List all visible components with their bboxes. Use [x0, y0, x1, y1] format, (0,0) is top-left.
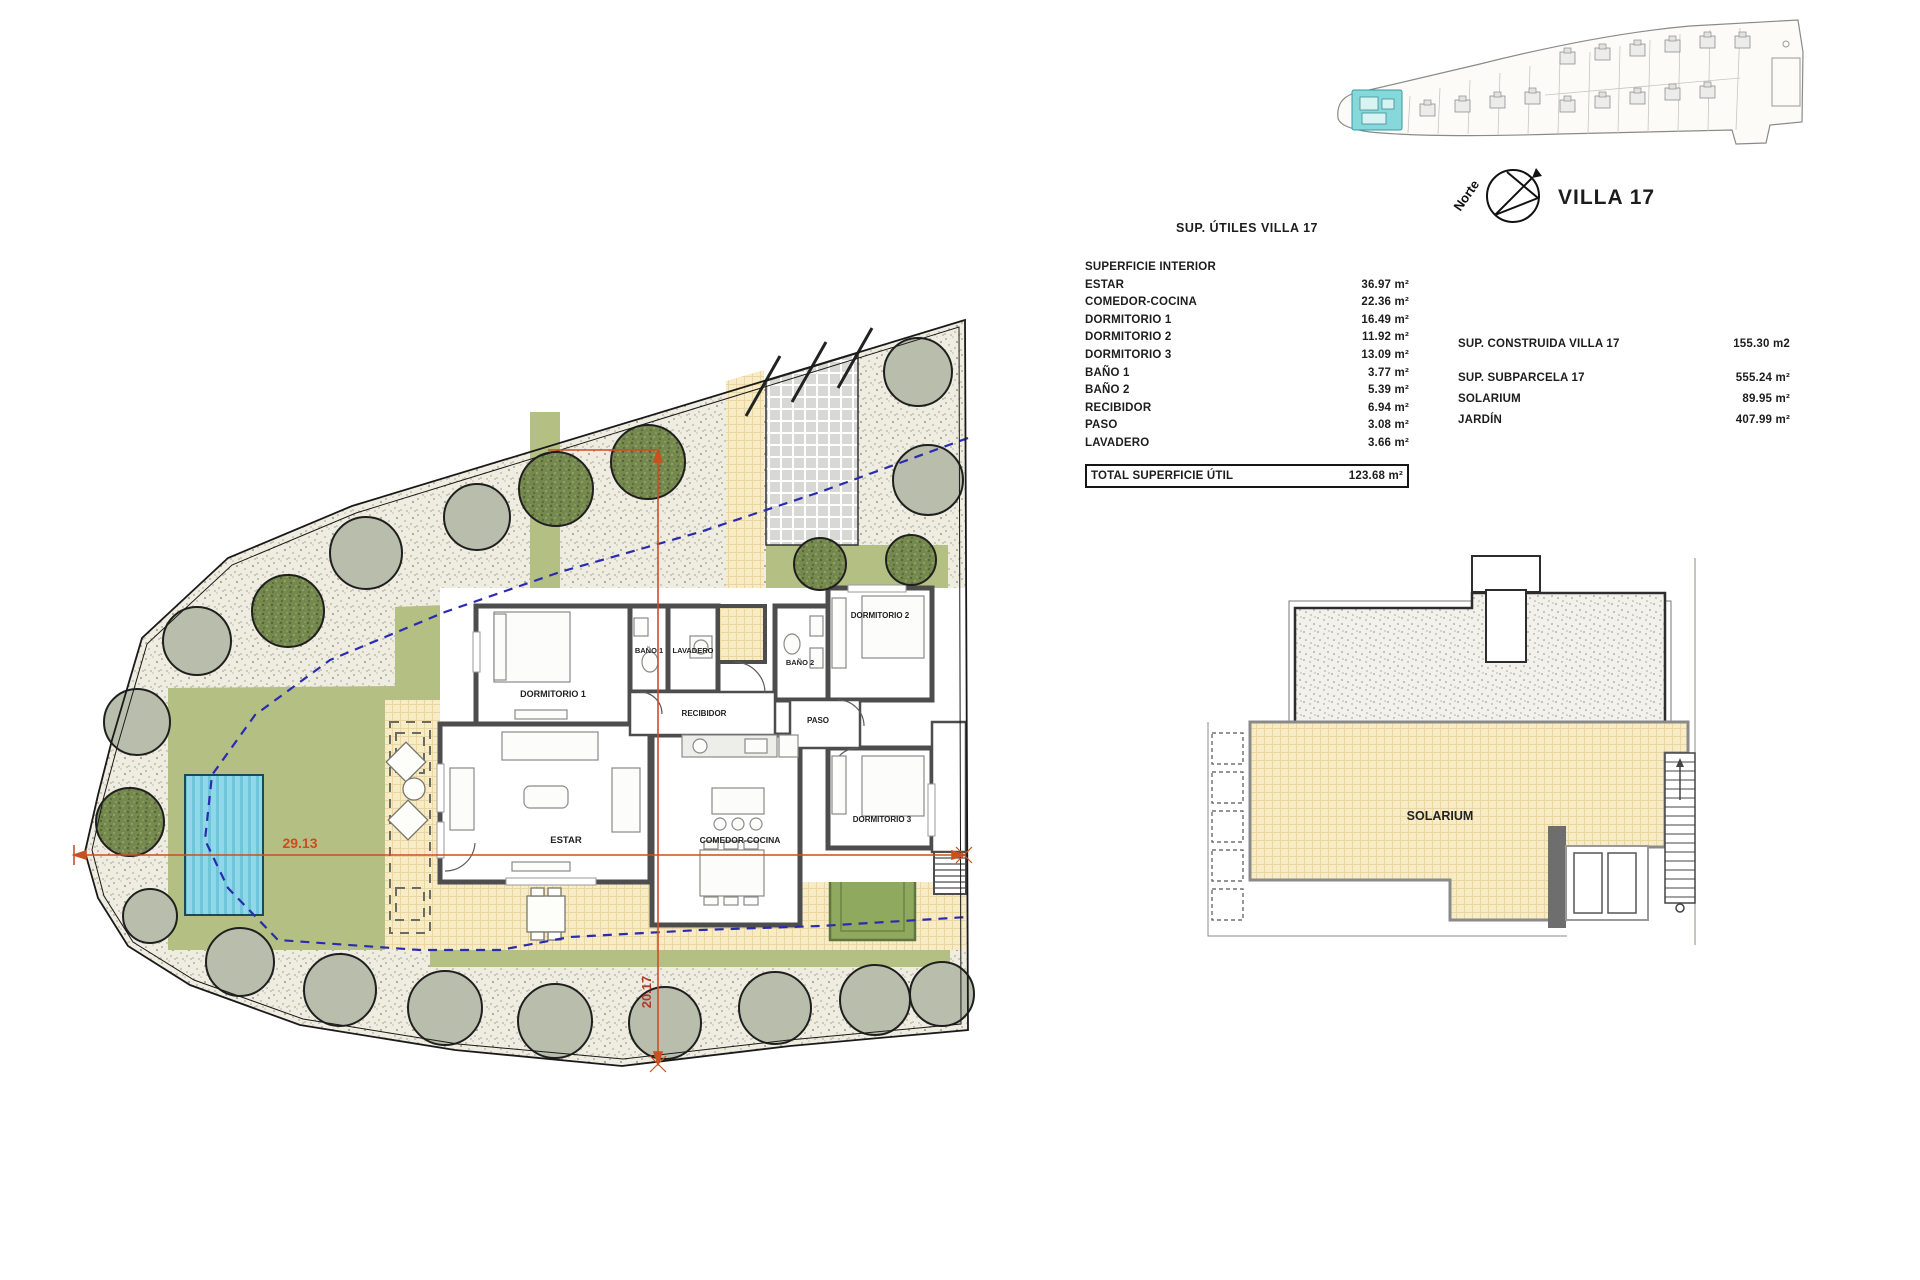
- solarium-wall-bar: [1548, 826, 1566, 928]
- table-row: RECIBIDOR6.94 m²: [1085, 400, 1409, 418]
- row-label: JARDÍN: [1458, 410, 1502, 431]
- table-row: COMEDOR-COCINA22.36 m²: [1085, 294, 1409, 312]
- dimension-depth-label: 20.17: [639, 976, 654, 1009]
- room-label-dormitorio3: DORMITORIO 3: [853, 815, 912, 824]
- table-row: DORMITORIO 211.92 m²: [1085, 329, 1409, 347]
- total-row: TOTAL SUPERFICIE ÚTIL123.68 m²: [1085, 464, 1409, 488]
- row-label: SUPERFICIE INTERIOR: [1085, 259, 1216, 277]
- table-row: LAVADERO3.66 m²: [1085, 435, 1409, 453]
- dimension-width-label: 29.13: [282, 835, 317, 851]
- north-compass: Norte: [1450, 168, 1542, 222]
- row-label: DORMITORIO 2: [1085, 329, 1172, 347]
- house: DORMITORIO 1 BAÑO 1 LAVADERO BAÑO 2 DORM…: [437, 585, 966, 925]
- room-label-dormitorio2: DORMITORIO 2: [851, 611, 910, 620]
- row-label: BAÑO 1: [1085, 365, 1130, 383]
- row-label: COMEDOR-COCINA: [1085, 294, 1197, 312]
- solarium-stairs: [1665, 753, 1695, 912]
- room-label-recibidor: RECIBIDOR: [682, 709, 727, 718]
- row-value: 155.30 m2: [1733, 334, 1790, 355]
- table-row: DORMITORIO 313.09 m²: [1085, 347, 1409, 365]
- room-label-estar: ESTAR: [550, 835, 582, 846]
- solarium-planters: [1212, 733, 1243, 920]
- sheet-title: VILLA 17: [1558, 186, 1655, 210]
- row-value: 36.97 m²: [1361, 277, 1409, 295]
- site-map-thumbnail: [1338, 20, 1803, 144]
- row-label: DORMITORIO 3: [1085, 347, 1172, 365]
- room-label-bano2: BAÑO 2: [786, 658, 814, 667]
- pool: [185, 775, 263, 915]
- table-row: BAÑO 25.39 m²: [1085, 382, 1409, 400]
- summary-row: SUP. CONSTRUIDA VILLA 17155.30 m2: [1458, 334, 1790, 355]
- table-row: PASO3.08 m²: [1085, 417, 1409, 435]
- north-label: Norte: [1450, 177, 1482, 213]
- row-label: DORMITORIO 1: [1085, 312, 1172, 330]
- summary-row: JARDÍN407.99 m²: [1458, 410, 1790, 431]
- row-label: SUP. CONSTRUIDA VILLA 17: [1458, 334, 1620, 355]
- table-row: BAÑO 13.77 m²: [1085, 365, 1409, 383]
- entry-recess: [718, 606, 765, 662]
- row-value: 3.66 m²: [1368, 435, 1409, 453]
- summary-row: SUP. SUBPARCELA 17555.24 m²: [1458, 368, 1790, 389]
- areas-table: SUP. ÚTILES VILLA 17 SUPERFICIE INTERIOR…: [1085, 221, 1409, 488]
- solarium-label: SOLARIUM: [1407, 809, 1474, 823]
- architectural-plan-sheet: DORMITORIO 1 BAÑO 1 LAVADERO BAÑO 2 DORM…: [0, 0, 1920, 1280]
- outdoor-table: [527, 888, 565, 940]
- row-value: 89.95 m²: [1742, 389, 1790, 410]
- room-label-lavadero: LAVADERO: [673, 646, 714, 655]
- row-value: 11.92 m²: [1362, 329, 1409, 347]
- row-value: 5.39 m²: [1368, 382, 1409, 400]
- roof-notch: [1486, 590, 1526, 662]
- areas-table-title: SUP. ÚTILES VILLA 17: [1085, 221, 1409, 235]
- row-value: 3.77 m²: [1368, 365, 1409, 383]
- compass-arrowhead: [1532, 168, 1542, 178]
- room-label-bano1: BAÑO 1: [635, 646, 663, 655]
- room-label-dormitorio1: DORMITORIO 1: [520, 689, 586, 699]
- compass-arrow-icon: [1495, 172, 1538, 215]
- row-label: SOLARIUM: [1458, 389, 1521, 410]
- roof-area: [1295, 593, 1665, 722]
- row-label: RECIBIDOR: [1085, 400, 1151, 418]
- row-value: 22.36 m²: [1361, 294, 1409, 312]
- site-plan: DORMITORIO 1 BAÑO 1 LAVADERO BAÑO 2 DORM…: [74, 320, 974, 1072]
- row-label: ESTAR: [1085, 277, 1124, 295]
- table-row: ESTAR36.97 m²: [1085, 277, 1409, 295]
- table-row: DORMITORIO 116.49 m²: [1085, 312, 1409, 330]
- row-label: BAÑO 2: [1085, 382, 1130, 400]
- row-value: 407.99 m²: [1736, 410, 1790, 431]
- row-value: 3.08 m²: [1368, 417, 1409, 435]
- summary-table: SUP. CONSTRUIDA VILLA 17155.30 m2 SUP. S…: [1458, 334, 1790, 431]
- total-value: 123.68 m²: [1349, 467, 1403, 485]
- entry-walkway: [726, 370, 764, 608]
- room-label-paso: PASO: [807, 716, 829, 725]
- row-label: LAVADERO: [1085, 435, 1149, 453]
- row-value: 6.94 m²: [1368, 400, 1409, 418]
- row-value: 555.24 m²: [1736, 368, 1790, 389]
- total-label: TOTAL SUPERFICIE ÚTIL: [1091, 467, 1233, 485]
- room-label-comedor-cocina: COMEDOR-COCINA: [700, 835, 781, 845]
- solarium-plan: SOLARIUM: [1208, 556, 1695, 945]
- row-value: 16.49 m²: [1361, 312, 1409, 330]
- row-label: SUP. SUBPARCELA 17: [1458, 368, 1585, 389]
- table-row: SUPERFICIE INTERIOR: [1085, 259, 1409, 277]
- summary-row: SOLARIUM89.95 m²: [1458, 389, 1790, 410]
- row-label: PASO: [1085, 417, 1118, 435]
- row-value: 13.09 m²: [1361, 347, 1409, 365]
- solarium-skylights: [1566, 846, 1648, 920]
- roof-chimney: [1472, 556, 1540, 592]
